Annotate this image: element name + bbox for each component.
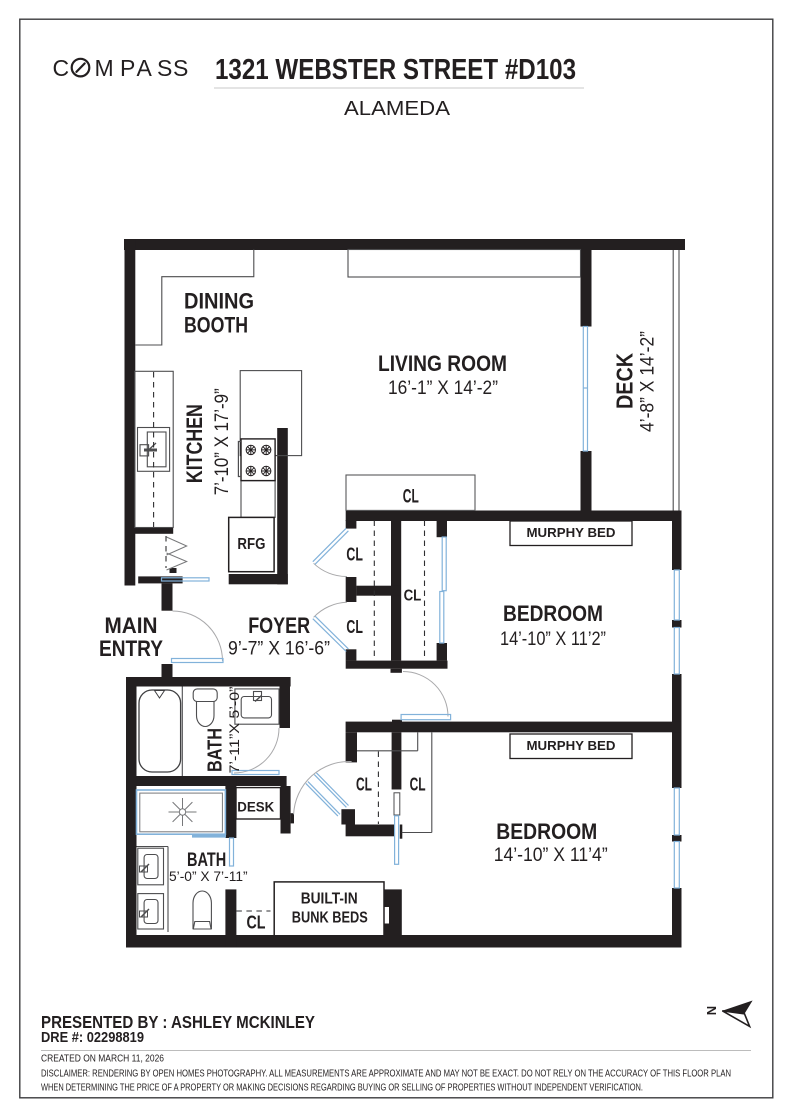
svg-text:BEDROOM: BEDROOM: [503, 601, 603, 626]
svg-text:BEDROOM: BEDROOM: [496, 819, 597, 844]
svg-text:BUNK BEDS: BUNK BEDS: [292, 909, 368, 926]
svg-text:DECK: DECK: [612, 353, 638, 409]
svg-text:ENTRY: ENTRY: [99, 636, 163, 661]
svg-text:CL: CL: [346, 617, 363, 637]
svg-text:CL: CL: [247, 913, 266, 933]
svg-text:RFG: RFG: [237, 536, 265, 553]
svg-text:DISCLAIMER: RENDERING BY OPEN: DISCLAIMER: RENDERING BY OPEN HOMES PHOT…: [41, 1069, 731, 1080]
svg-text:14’-10” X 11’4”: 14’-10” X 11’4”: [494, 845, 608, 866]
svg-text:CL: CL: [346, 545, 363, 565]
svg-text:MURPHY BED: MURPHY BED: [527, 525, 616, 540]
svg-text:DESK: DESK: [237, 799, 274, 815]
svg-text:LIVING ROOM: LIVING ROOM: [378, 351, 507, 376]
svg-text:WHEN DETERMINING THE PRICE OF: WHEN DETERMINING THE PRICE OF A PROPERTY…: [41, 1083, 643, 1094]
svg-text:7’-10” X 17’-9”: 7’-10” X 17’-9”: [212, 388, 233, 495]
svg-text:CL: CL: [404, 587, 422, 604]
svg-text:CL: CL: [410, 774, 426, 794]
svg-text:DRE #: 02298819: DRE #: 02298819: [41, 1029, 144, 1046]
svg-text:ALAMEDA: ALAMEDA: [344, 97, 450, 120]
svg-text:MAIN: MAIN: [105, 613, 158, 638]
svg-text:MURPHY BED: MURPHY BED: [527, 738, 616, 753]
svg-text:CREATED ON MARCH 11, 2026: CREATED ON MARCH 11, 2026: [41, 1053, 164, 1065]
svg-text:5’-0” X 7’-11”: 5’-0” X 7’-11”: [169, 868, 248, 884]
svg-text:7’-11”X 5’-0”: 7’-11”X 5’-0”: [227, 687, 242, 774]
svg-text:4’-8” X 14’-2”: 4’-8” X 14’-2”: [638, 331, 659, 432]
svg-text:CL: CL: [403, 486, 419, 507]
svg-text:KITCHEN: KITCHEN: [182, 404, 207, 483]
svg-text:9’-7” X 16’-6”: 9’-7” X 16’-6”: [228, 639, 330, 660]
svg-text:BOOTH: BOOTH: [184, 312, 248, 337]
svg-text:DINING: DINING: [184, 288, 254, 313]
svg-text:16’-1” X 14’-2”: 16’-1” X 14’-2”: [388, 378, 498, 399]
svg-text:FOYER: FOYER: [248, 613, 310, 638]
svg-text:BATH: BATH: [205, 728, 227, 772]
svg-text:14’-10” X 11’2”: 14’-10” X 11’2”: [500, 629, 606, 650]
svg-text:1321 WEBSTER STREET #D103: 1321 WEBSTER STREET #D103: [215, 54, 576, 86]
svg-text:BUILT-IN: BUILT-IN: [301, 890, 358, 907]
svg-text:N: N: [704, 1006, 719, 1015]
svg-text:CL: CL: [356, 774, 372, 794]
